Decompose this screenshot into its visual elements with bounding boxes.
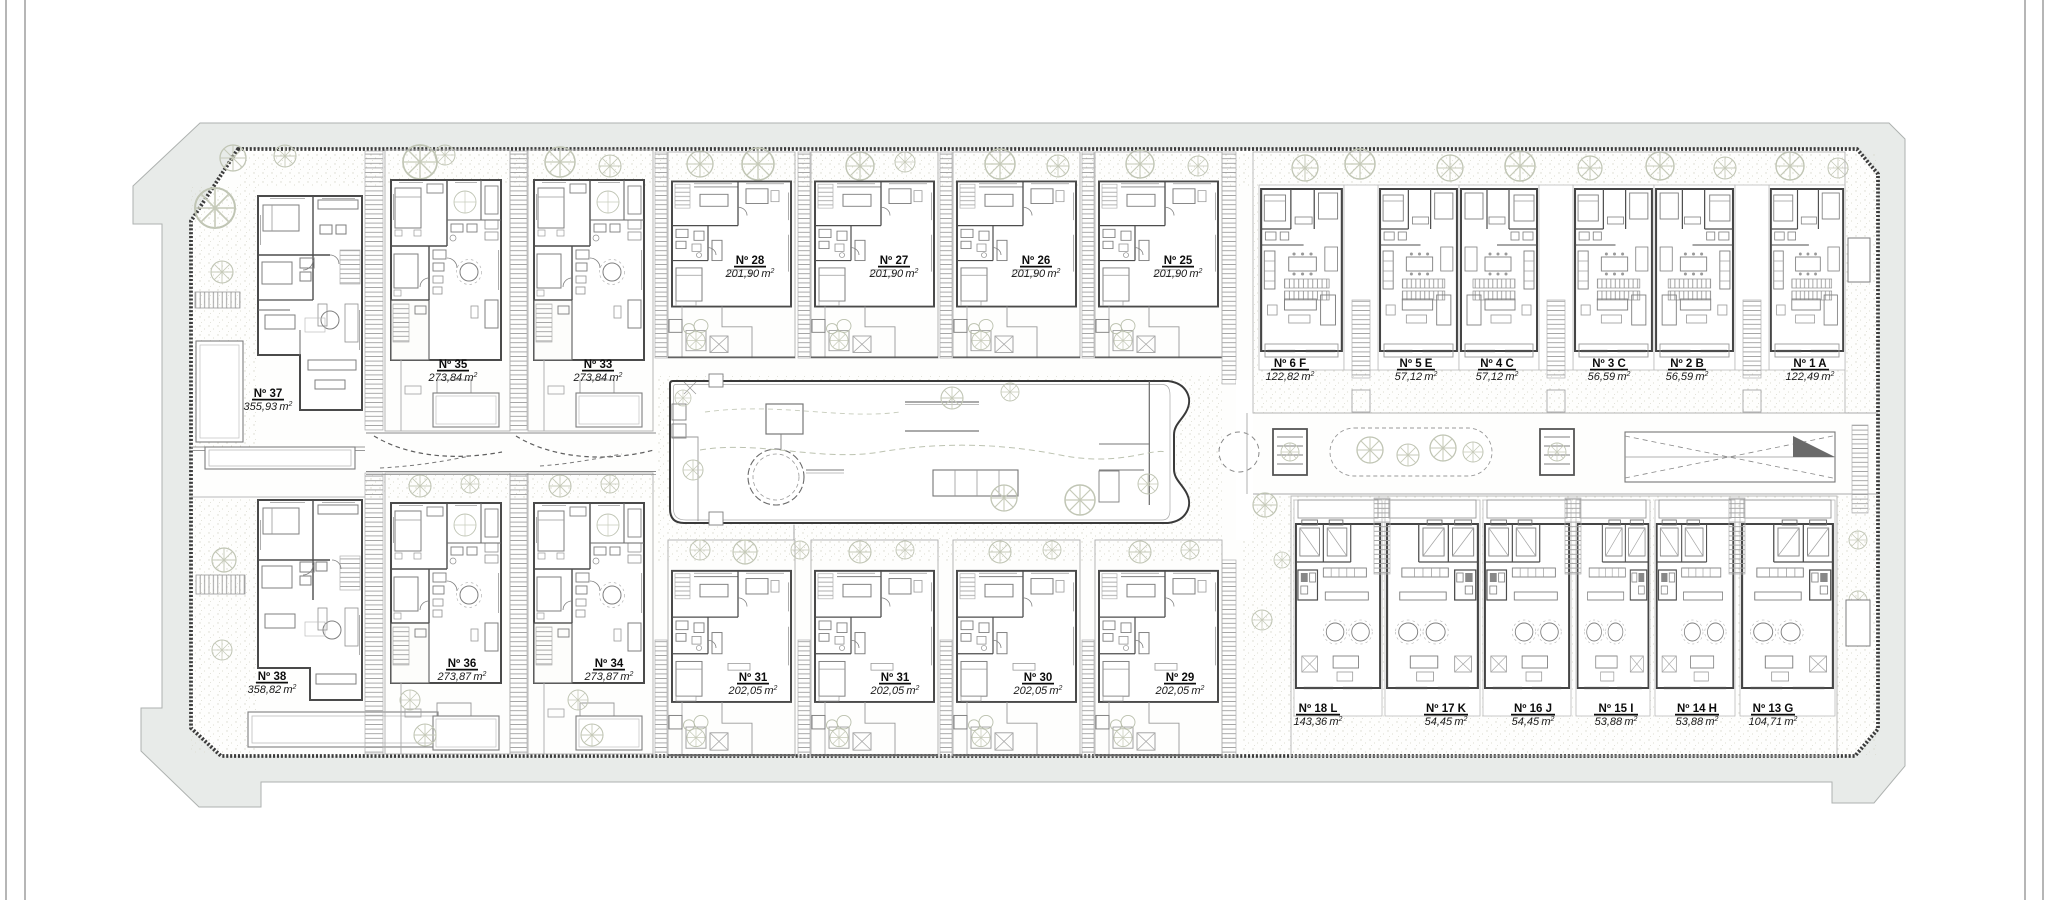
svg-text:201,90 m2: 201,90 m2 <box>869 268 919 280</box>
svg-text:273,87 m2: 273,87 m2 <box>584 671 634 683</box>
svg-text:273,84 m2: 273,84 m2 <box>573 372 623 384</box>
svg-text:Nº 17 K: Nº 17 K <box>1426 703 1467 715</box>
svg-text:Nº 16 J: Nº 16 J <box>1514 703 1552 715</box>
svg-text:Nº 18 L: Nº 18 L <box>1299 703 1338 715</box>
svg-text:202,05 m2: 202,05 m2 <box>728 685 778 697</box>
svg-text:54,45 m2: 54,45 m2 <box>1425 716 1468 728</box>
svg-text:104,71 m2: 104,71 m2 <box>1749 716 1798 728</box>
svg-text:201,90 m2: 201,90 m2 <box>725 268 775 280</box>
svg-text:122,49 m2: 122,49 m2 <box>1786 371 1835 383</box>
svg-text:143,36 m2: 143,36 m2 <box>1294 716 1343 728</box>
svg-text:57,12 m2: 57,12 m2 <box>1476 371 1519 383</box>
svg-text:Nº 28: Nº 28 <box>736 255 765 267</box>
svg-text:53,88 m2: 53,88 m2 <box>1595 716 1638 728</box>
svg-text:57,12 m2: 57,12 m2 <box>1395 371 1438 383</box>
svg-text:273,84 m2: 273,84 m2 <box>428 372 478 384</box>
svg-text:358,82 m2: 358,82 m2 <box>248 684 297 696</box>
svg-text:273,87 m2: 273,87 m2 <box>437 671 487 683</box>
svg-text:Nº 33: Nº 33 <box>584 359 613 371</box>
svg-text:355,93 m2: 355,93 m2 <box>244 401 293 413</box>
svg-text:Nº 29: Nº 29 <box>1166 672 1195 684</box>
svg-text:Nº 13 G: Nº 13 G <box>1753 703 1794 715</box>
svg-text:201,90 m2: 201,90 m2 <box>1011 268 1061 280</box>
svg-text:202,05 m2: 202,05 m2 <box>870 685 920 697</box>
svg-text:122,82 m2: 122,82 m2 <box>1266 371 1315 383</box>
svg-text:Nº 35: Nº 35 <box>439 359 468 371</box>
svg-text:201,90 m2: 201,90 m2 <box>1153 268 1203 280</box>
svg-text:Nº 25: Nº 25 <box>1164 255 1193 267</box>
svg-text:Nº 3 C: Nº 3 C <box>1592 358 1626 370</box>
svg-text:Nº 37: Nº 37 <box>254 388 283 400</box>
svg-text:Nº 38: Nº 38 <box>258 671 287 683</box>
svg-text:53,88 m2: 53,88 m2 <box>1676 716 1719 728</box>
svg-text:Nº 36: Nº 36 <box>448 658 477 670</box>
svg-text:202,05 m2: 202,05 m2 <box>1155 685 1205 697</box>
svg-text:56,59 m2: 56,59 m2 <box>1666 371 1709 383</box>
svg-text:202,05 m2: 202,05 m2 <box>1013 685 1063 697</box>
svg-text:Nº 26: Nº 26 <box>1022 255 1051 267</box>
svg-text:Nº 5 E: Nº 5 E <box>1400 358 1433 370</box>
svg-text:Nº 14 H: Nº 14 H <box>1677 703 1717 715</box>
svg-text:56,59 m2: 56,59 m2 <box>1588 371 1631 383</box>
svg-text:Nº 30: Nº 30 <box>1024 672 1053 684</box>
svg-text:Nº 4 C: Nº 4 C <box>1480 358 1514 370</box>
svg-text:Nº 27: Nº 27 <box>880 255 909 267</box>
svg-text:Nº 1 A: Nº 1 A <box>1793 358 1826 370</box>
svg-text:Nº 34: Nº 34 <box>595 658 624 670</box>
svg-text:Nº 2 B: Nº 2 B <box>1670 358 1704 370</box>
svg-text:Nº 15 I: Nº 15 I <box>1599 703 1634 715</box>
svg-text:Nº 6 F: Nº 6 F <box>1274 358 1306 370</box>
svg-text:54,45 m2: 54,45 m2 <box>1512 716 1555 728</box>
svg-text:Nº 31: Nº 31 <box>881 672 910 684</box>
svg-text:Nº 31: Nº 31 <box>739 672 768 684</box>
